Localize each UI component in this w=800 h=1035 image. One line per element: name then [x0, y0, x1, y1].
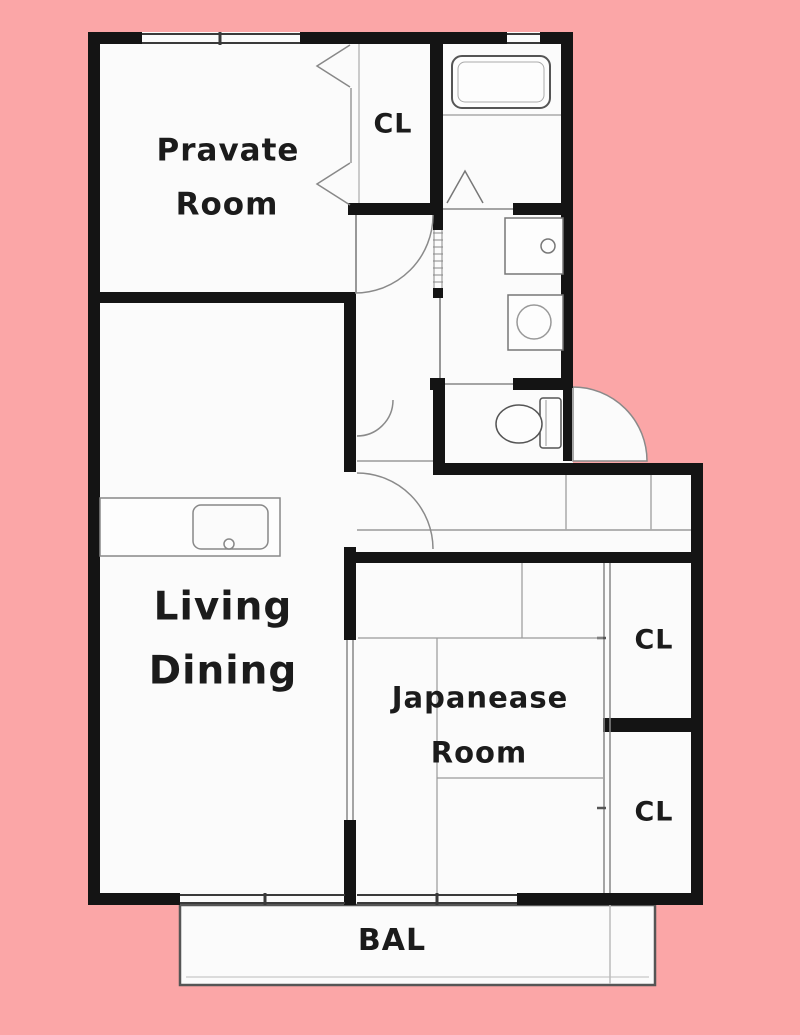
closet-lower-right-label: CL: [634, 799, 673, 826]
living-dining-label-line1: Living: [154, 588, 293, 627]
kitchen-counter: [100, 498, 280, 556]
japanese-room-label-line2: Room: [431, 739, 527, 768]
floor-plan: Pravate Room CL Living Dining Japanease …: [0, 0, 800, 1035]
japanese-room-label-line1: Japanease: [392, 684, 569, 713]
entry-door-swing-arc: [573, 387, 647, 461]
bathtub: [452, 56, 550, 108]
living-dining-label-line2: Dining: [149, 652, 298, 691]
closet-top-label: CL: [373, 111, 412, 138]
washing-machine: [508, 295, 563, 350]
private-room-label-line1: Pravate: [157, 136, 300, 167]
washbasin: [505, 218, 563, 274]
closet-upper-right-label: CL: [634, 627, 673, 654]
balcony-label: BAL: [358, 926, 426, 956]
entry-door-leaf: [563, 388, 572, 461]
floor-plan-drawing: [0, 0, 800, 1035]
private-room-label-line2: Room: [176, 190, 279, 221]
kitchen-faucet: [224, 539, 234, 549]
